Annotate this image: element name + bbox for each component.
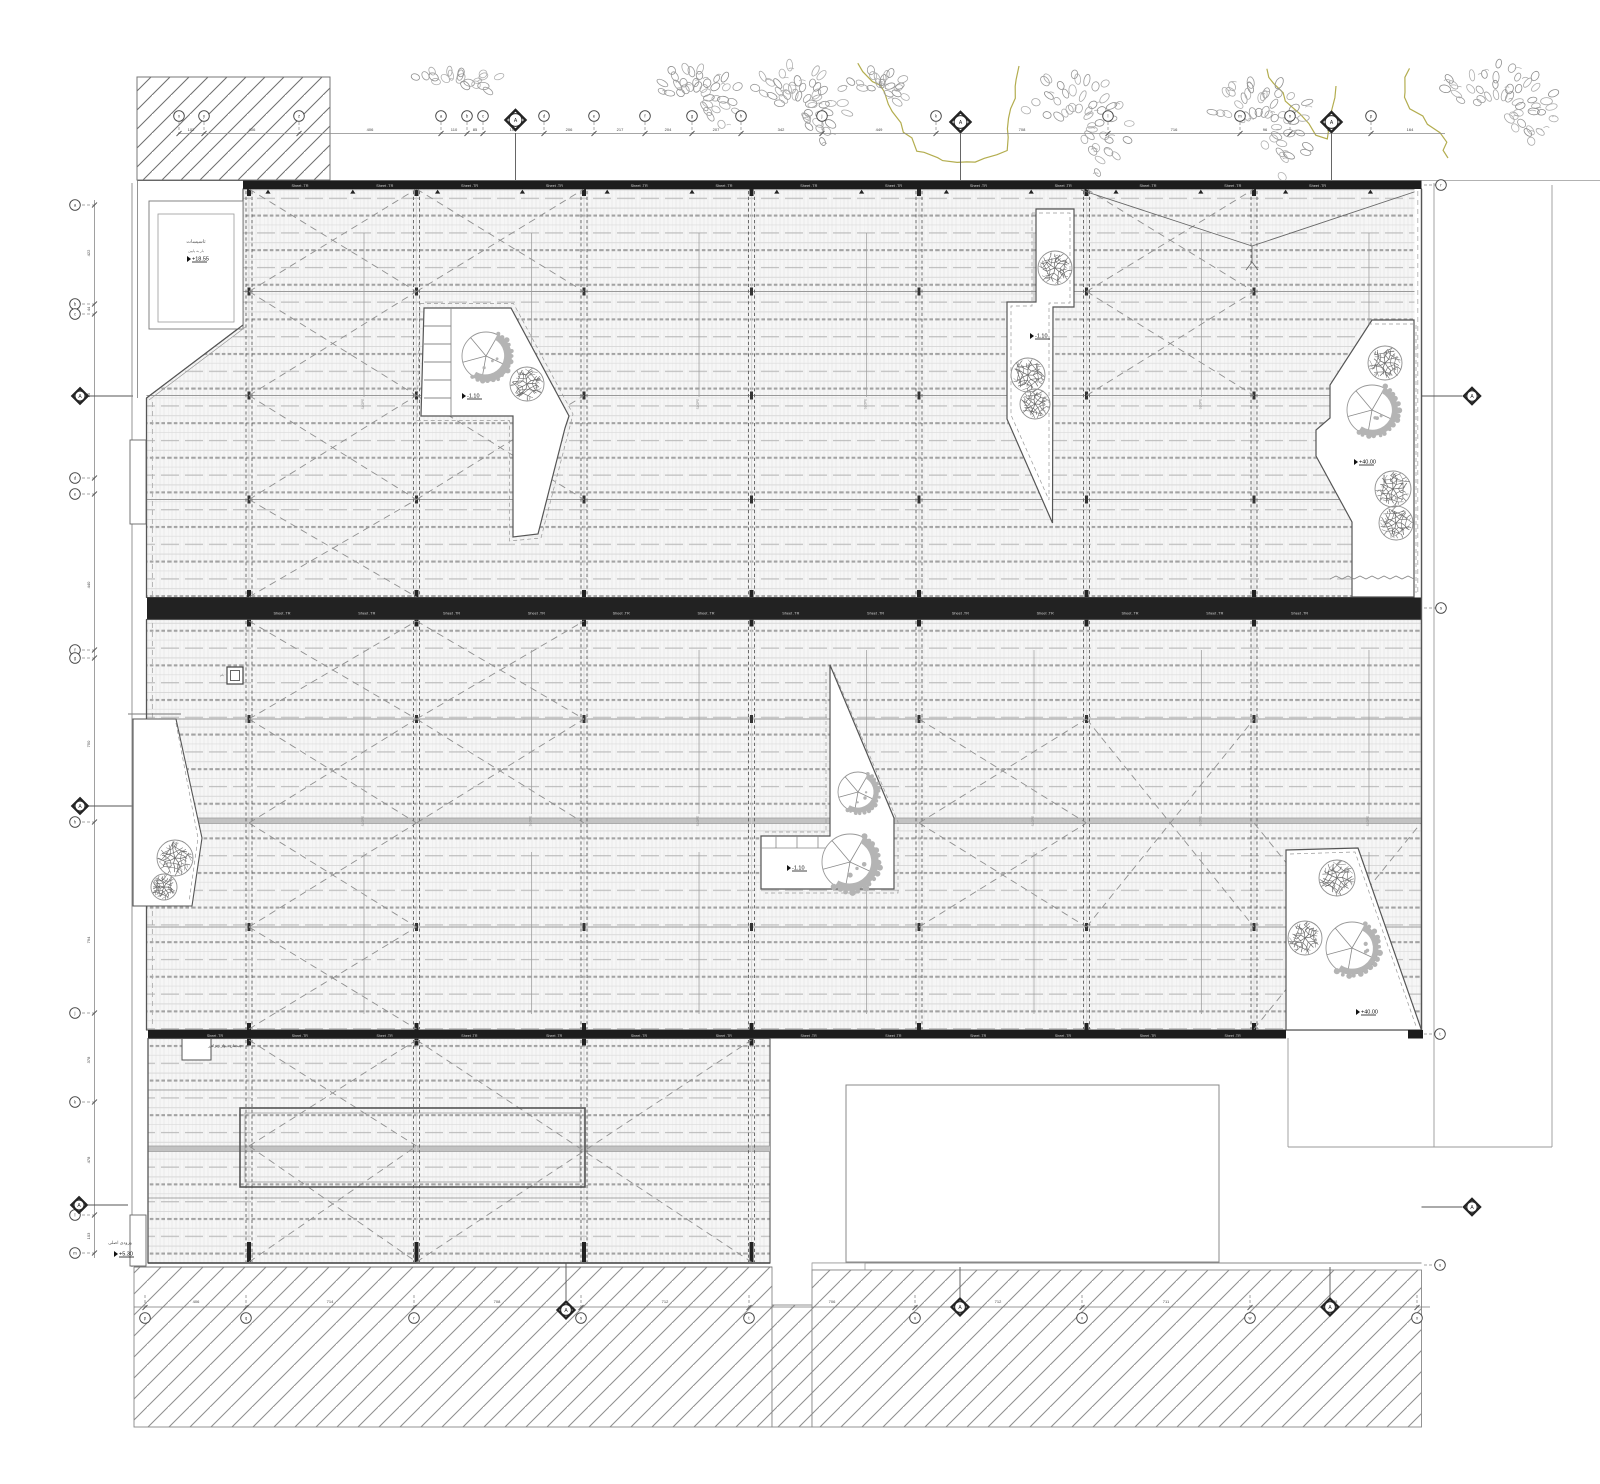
svg-text:712: 712 <box>662 1299 669 1304</box>
svg-text:Sheet .TR: Sheet .TR <box>1206 612 1223 616</box>
svg-text:Sheet .TR: Sheet .TR <box>377 1034 394 1038</box>
svg-text:Sheet .TR: Sheet .TR <box>546 1034 563 1038</box>
svg-text:711: 711 <box>1163 1299 1170 1304</box>
svg-text:Sheet .TR: Sheet .TR <box>715 184 732 188</box>
svg-text:j: j <box>821 114 823 119</box>
svg-text:378: 378 <box>86 1056 91 1063</box>
svg-text:Sheet .TR: Sheet .TR <box>528 612 545 616</box>
svg-text:Sheet .TR: Sheet .TR <box>867 612 884 616</box>
svg-text:96: 96 <box>1263 127 1268 132</box>
svg-text:Sheet .TR: Sheet .TR <box>1225 1034 1242 1038</box>
svg-text:440: 440 <box>86 581 91 588</box>
svg-text:SLOPE: SLOPE <box>1366 816 1370 827</box>
svg-text:164: 164 <box>1407 127 1414 132</box>
svg-text:Sheet .TR: Sheet .TR <box>1291 612 1308 616</box>
svg-text:تاسیسات: تاسیسات <box>186 239 206 245</box>
svg-text:Sheet .TR: Sheet .TR <box>1121 612 1138 616</box>
svg-text:Sheet .TR: Sheet .TR <box>885 184 902 188</box>
svg-text:110: 110 <box>451 127 458 132</box>
svg-text:m: m <box>73 1251 77 1256</box>
svg-text:207: 207 <box>713 127 720 132</box>
svg-text:l: l <box>1108 114 1109 119</box>
svg-text:Sheet .TR: Sheet .TR <box>1055 1034 1072 1038</box>
svg-text:Sheet .TR: Sheet .TR <box>716 1034 733 1038</box>
svg-text:406: 406 <box>193 1299 200 1304</box>
svg-text:102: 102 <box>188 127 195 132</box>
svg-text:SLOPE: SLOPE <box>1031 816 1035 827</box>
svg-text:Sheet .TR: Sheet .TR <box>782 612 799 616</box>
svg-text:422: 422 <box>86 249 91 256</box>
svg-text:Sheet .TR: Sheet .TR <box>631 1034 648 1038</box>
svg-text:بار به پایین: بار به پایین <box>188 248 204 253</box>
svg-text:44: 44 <box>86 306 91 311</box>
svg-text:بام: بام <box>220 673 224 677</box>
svg-text:794: 794 <box>86 936 91 943</box>
svg-text:750: 750 <box>86 740 91 747</box>
svg-text:Sheet .TR: Sheet .TR <box>697 612 714 616</box>
svg-text:708: 708 <box>1019 127 1026 132</box>
svg-text:s: s <box>1440 606 1442 611</box>
svg-text:449: 449 <box>876 127 883 132</box>
svg-text:SLOPE: SLOPE <box>361 399 365 410</box>
svg-text:SLOPE: SLOPE <box>529 816 533 827</box>
svg-text:چیدمان دیوار ژنراتور: چیدمان دیوار ژنراتور <box>207 1043 242 1048</box>
svg-text:s: s <box>580 1316 582 1321</box>
svg-text:Sheet .TR: Sheet .TR <box>952 612 969 616</box>
svg-text:406: 406 <box>367 127 374 132</box>
svg-text:Sheet .TR: Sheet .TR <box>291 184 308 188</box>
svg-text:Sheet .TR: Sheet .TR <box>273 612 290 616</box>
svg-text:Sheet .TR: Sheet .TR <box>970 184 987 188</box>
svg-text:SLOPE: SLOPE <box>361 816 365 827</box>
svg-text:103: 103 <box>86 1232 91 1239</box>
svg-text:206: 206 <box>566 127 573 132</box>
svg-text:85: 85 <box>473 127 478 132</box>
svg-text:m: m <box>1238 114 1242 119</box>
svg-text:z: z <box>298 114 300 119</box>
svg-text:204: 204 <box>665 127 672 132</box>
svg-text:Sheet .TR: Sheet .TR <box>358 612 375 616</box>
svg-text:716: 716 <box>1171 127 1178 132</box>
svg-text:Sheet .TR: Sheet .TR <box>1139 184 1156 188</box>
svg-text:Sheet .TR: Sheet .TR <box>800 184 817 188</box>
svg-text:SLOPE: SLOPE <box>864 399 868 410</box>
svg-text:708: 708 <box>494 1299 501 1304</box>
svg-text:SLOPE: SLOPE <box>1199 816 1203 827</box>
svg-text:Sheet .TR: Sheet .TR <box>546 184 563 188</box>
svg-text:Sheet .TR: Sheet .TR <box>970 1034 987 1038</box>
svg-text:Sheet .TR: Sheet .TR <box>207 1034 224 1038</box>
svg-text:712: 712 <box>995 1299 1002 1304</box>
svg-text:SLOPE: SLOPE <box>696 816 700 827</box>
svg-text:Sheet .TR: Sheet .TR <box>613 612 630 616</box>
svg-text:Sheet .TR: Sheet .TR <box>801 1034 818 1038</box>
svg-text:j: j <box>74 1011 76 1016</box>
svg-text:Sheet .TR: Sheet .TR <box>1037 612 1054 616</box>
svg-text:SLOPE: SLOPE <box>696 399 700 410</box>
svg-text:Sheet .TR: Sheet .TR <box>461 184 478 188</box>
svg-text:Sheet .TR: Sheet .TR <box>1309 184 1326 188</box>
svg-text:Sheet .TR: Sheet .TR <box>885 1034 902 1038</box>
svg-text:Sheet .TR: Sheet .TR <box>1140 1034 1157 1038</box>
svg-text:Sheet .TR: Sheet .TR <box>376 184 393 188</box>
svg-text:l: l <box>75 1213 76 1218</box>
svg-text:478: 478 <box>86 1156 91 1163</box>
svg-text:Sheet .TR: Sheet .TR <box>461 1034 478 1038</box>
svg-text:c: c <box>482 114 484 119</box>
svg-text:217: 217 <box>617 127 624 132</box>
svg-text:Sheet .TR: Sheet .TR <box>443 612 460 616</box>
svg-text:406: 406 <box>249 127 256 132</box>
svg-text:706: 706 <box>829 1299 836 1304</box>
svg-text:Sheet .TR: Sheet .TR <box>1224 184 1241 188</box>
svg-text:c: c <box>74 312 76 317</box>
svg-text:342: 342 <box>778 127 785 132</box>
svg-text:Sheet .TR: Sheet .TR <box>292 1034 309 1038</box>
svg-text:Sheet .TR: Sheet .TR <box>631 184 648 188</box>
svg-text:714: 714 <box>327 1299 334 1304</box>
svg-text:Sheet .TR: Sheet .TR <box>1055 184 1072 188</box>
svg-text:SLOPE: SLOPE <box>1199 399 1203 410</box>
